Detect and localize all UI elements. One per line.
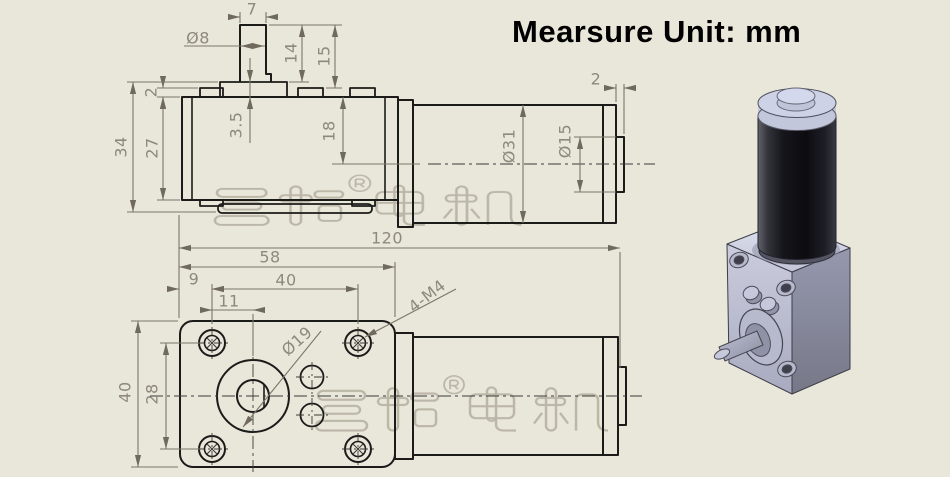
dim-label-14: 14 [282,42,301,63]
dim-label-15: Ø15 [556,124,575,158]
dim-label-7: 7 [247,0,258,19]
dim-label-3.5: 3.5 [227,112,246,139]
dim-label-40: 40 [275,271,296,290]
dim-label-27: 27 [143,137,162,158]
dim-label-18: 18 [320,120,339,141]
page-title: Mearsure Unit: mm [512,14,852,50]
bottom-view-linework [180,321,626,467]
dim-label-34: 34 [112,136,131,157]
dim-label-120: 120 [371,229,403,248]
technical-drawing-page: Mearsure Unit: mm 7Ø8141523.5182734Ø31Ø1… [0,0,950,477]
dim-label-9: 9 [189,270,200,289]
motor-3d-render [713,88,850,394]
dim-label-11: 11 [218,292,239,311]
dim-label-2: 2 [591,70,602,89]
dim-label-28: 28 [143,383,162,404]
dim-label-8: Ø8 [186,29,210,48]
dim-label-2: 2 [142,87,161,98]
dim-label-31: Ø31 [500,129,519,163]
dim-label-15: 15 [315,45,334,66]
dim-label-40: 40 [116,381,135,402]
engineering-drawing-canvas [0,0,950,477]
dim-label-58: 58 [259,248,280,267]
